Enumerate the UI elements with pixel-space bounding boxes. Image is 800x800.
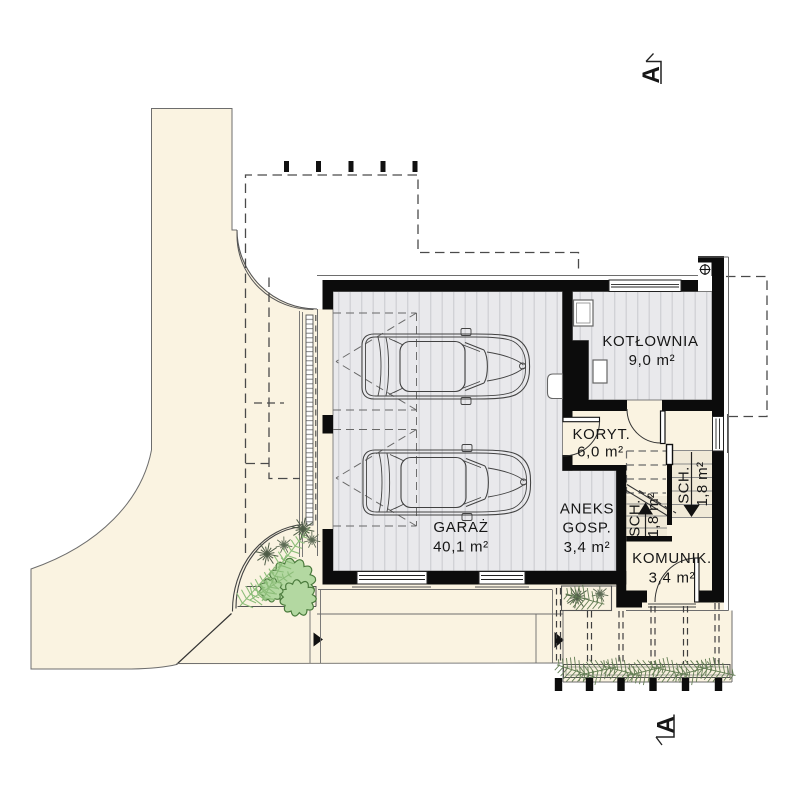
svg-text:ANEKS: ANEKS (560, 501, 614, 518)
svg-text:1,8 m²: 1,8 m² (694, 462, 711, 507)
svg-text:GARAŻ: GARAŻ (433, 518, 488, 536)
svg-text:KOTŁOWNIA: KOTŁOWNIA (602, 333, 698, 350)
svg-text:40,1 m²: 40,1 m² (433, 539, 489, 556)
svg-text:6,0 m²: 6,0 m² (577, 444, 624, 461)
svg-text:3,4 m²: 3,4 m² (649, 570, 696, 587)
svg-text:KORYT.: KORYT. (572, 426, 630, 443)
svg-text:A: A (653, 716, 680, 733)
svg-text:GOSP.: GOSP. (562, 520, 611, 537)
svg-text:KOMUNIK.: KOMUNIK. (632, 550, 712, 567)
svg-text:9,0 m²: 9,0 m² (629, 352, 676, 369)
svg-text:3,4 m²: 3,4 m² (564, 539, 611, 556)
svg-text:SCH.: SCH. (676, 466, 693, 503)
svg-text:1,8 m²: 1,8 m² (645, 493, 662, 538)
svg-text:SCH.: SCH. (627, 499, 644, 536)
